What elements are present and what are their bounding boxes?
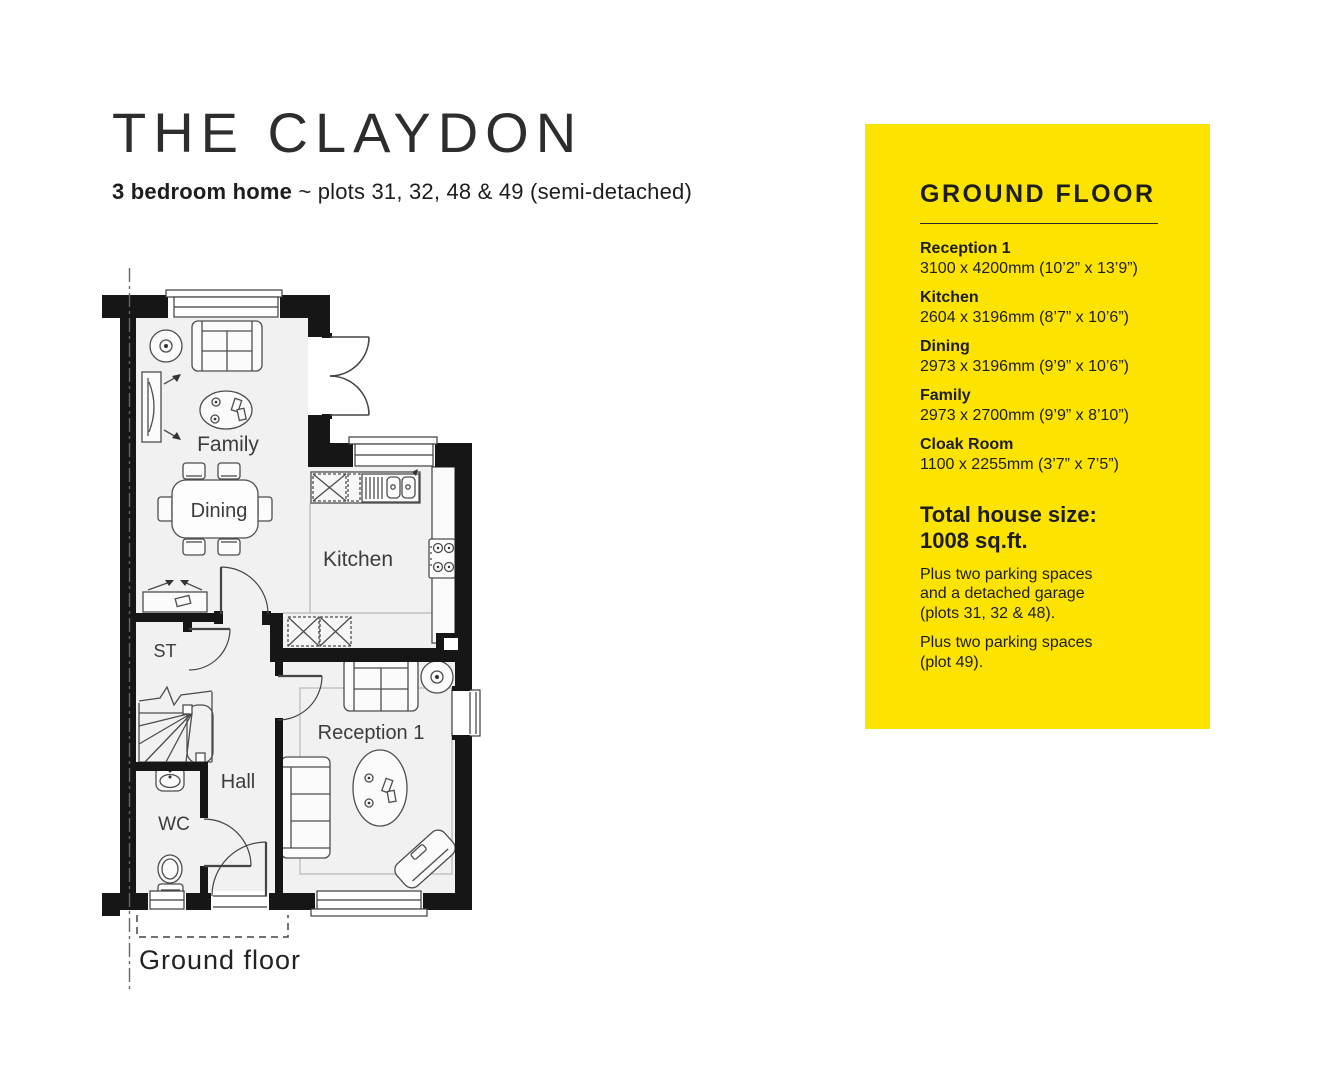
room-spec-dims: 2973 x 3196mm (9’9” x 10’6”) bbox=[920, 357, 1172, 377]
ground-floor-panel: GROUND FLOOR Reception 1 3100 x 4200mm (… bbox=[865, 124, 1210, 729]
room-spec-name: Cloak Room bbox=[920, 435, 1172, 455]
parking-note-2: Plus two parking spaces (plot 49). bbox=[920, 633, 1112, 672]
label-reception: Reception 1 bbox=[318, 722, 425, 744]
wc-window bbox=[150, 891, 184, 909]
family-sofa bbox=[192, 321, 262, 371]
family-coffee-table bbox=[200, 391, 252, 429]
parking-note-1: Plus two parking spaces and a detached g… bbox=[920, 565, 1112, 624]
room-spec: Kitchen 2604 x 3196mm (8’7” x 10’6”) bbox=[920, 288, 1172, 328]
label-hall: Hall bbox=[221, 771, 255, 793]
reception-sofa-top bbox=[344, 658, 418, 711]
page: { "page": { "title": "THE CLAYDON", "sub… bbox=[0, 0, 1324, 1080]
room-spec-name: Family bbox=[920, 386, 1172, 406]
room-spec-name: Dining bbox=[920, 337, 1172, 357]
kitchen-window bbox=[349, 437, 437, 466]
party-wall-stub-bottom bbox=[102, 893, 120, 916]
reception-coffee-table bbox=[353, 750, 407, 826]
total-label: Total house size: bbox=[920, 502, 1172, 528]
reception-plant-table bbox=[421, 661, 453, 693]
family-window bbox=[166, 290, 282, 317]
label-family: Family bbox=[197, 433, 259, 456]
label-dining: Dining bbox=[191, 500, 248, 522]
room-spec: Reception 1 3100 x 4200mm (10’2” x 13’9”… bbox=[920, 239, 1172, 279]
label-st: ST bbox=[153, 641, 176, 661]
room-spec-name: Kitchen bbox=[920, 288, 1172, 308]
reception-sofa-left bbox=[281, 757, 330, 858]
room-spec-dims: 2973 x 2700mm (9’9” x 8’10”) bbox=[920, 406, 1172, 426]
room-spec-dims: 1100 x 2255mm (3’7” x 7’5”) bbox=[920, 455, 1172, 475]
room-spec: Cloak Room 1100 x 2255mm (3’7” x 7’5”) bbox=[920, 435, 1172, 475]
flue-block bbox=[436, 633, 472, 655]
kitchen-sink bbox=[362, 469, 419, 502]
total-value: 1008 sq.ft. bbox=[920, 528, 1172, 554]
room-spec: Family 2973 x 2700mm (9’9” x 8’10”) bbox=[920, 386, 1172, 426]
kitchen-hob bbox=[429, 539, 455, 578]
side-window-box bbox=[452, 686, 480, 740]
total-house-size: Total house size: 1008 sq.ft. bbox=[920, 502, 1172, 555]
front-door-threshold bbox=[211, 891, 269, 910]
room-spec-dims: 3100 x 4200mm (10’2” x 13’9”) bbox=[920, 259, 1172, 279]
label-kitchen: Kitchen bbox=[323, 548, 393, 571]
panel-heading: GROUND FLOOR bbox=[920, 180, 1172, 209]
room-spec-name: Reception 1 bbox=[920, 239, 1172, 259]
room-spec-dims: 2604 x 3196mm (8’7” x 10’6”) bbox=[920, 308, 1172, 328]
caption-bracket bbox=[137, 915, 288, 937]
panel-rule bbox=[920, 223, 1158, 224]
reception-window bbox=[311, 891, 427, 916]
family-side-table bbox=[150, 330, 182, 362]
room-spec: Dining 2973 x 3196mm (9’9” x 10’6”) bbox=[920, 337, 1172, 377]
plan-caption: Ground floor bbox=[139, 945, 301, 975]
party-wall-stub-top bbox=[102, 295, 120, 318]
french-doors bbox=[330, 337, 369, 415]
label-wc: WC bbox=[158, 814, 190, 835]
